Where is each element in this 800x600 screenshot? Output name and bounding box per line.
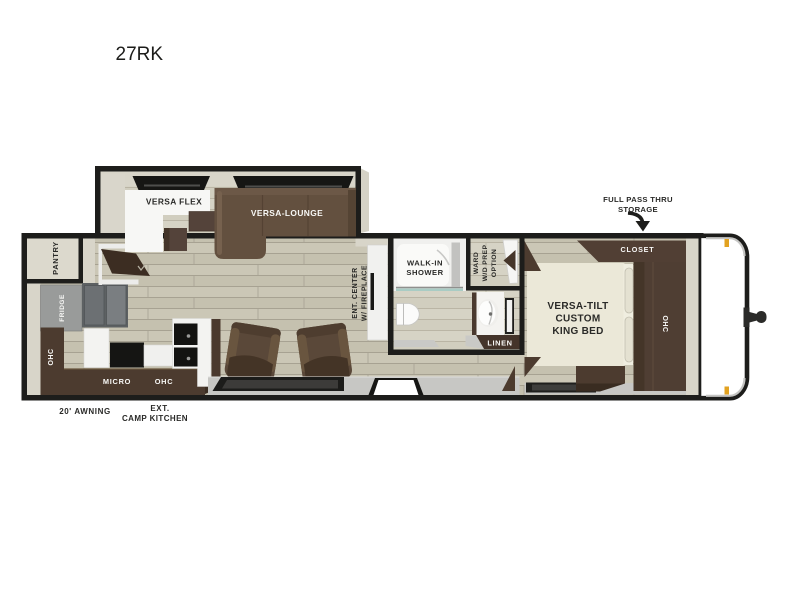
svg-text:20' AWNING: 20' AWNING [59, 407, 111, 416]
svg-text:CLOSET: CLOSET [621, 245, 655, 254]
svg-text:VERSA-LOUNGE: VERSA-LOUNGE [251, 208, 323, 218]
svg-text:W/D PREP: W/D PREP [482, 245, 489, 282]
svg-text:STORAGE: STORAGE [618, 205, 658, 214]
svg-text:WALK-IN: WALK-IN [407, 259, 443, 268]
svg-text:W/ FIREPLACE: W/ FIREPLACE [362, 265, 369, 321]
svg-text:KING BED: KING BED [552, 326, 603, 337]
svg-text:ENT. CENTER: ENT. CENTER [352, 267, 359, 318]
svg-text:SHOWER: SHOWER [406, 268, 443, 277]
svg-text:MICRO: MICRO [103, 377, 131, 386]
svg-text:OHC: OHC [155, 377, 174, 386]
svg-text:FRIDGE: FRIDGE [59, 294, 66, 322]
svg-text:OPTION: OPTION [491, 249, 498, 277]
svg-text:EXT.: EXT. [150, 404, 169, 413]
svg-text:27RK: 27RK [116, 44, 164, 65]
svg-text:LINEN: LINEN [487, 339, 512, 348]
svg-text:VERSA FLEX: VERSA FLEX [146, 197, 202, 207]
svg-text:FULL PASS THRU: FULL PASS THRU [603, 195, 673, 204]
svg-text:CAMP KITCHEN: CAMP KITCHEN [122, 414, 188, 423]
svg-text:CUSTOM: CUSTOM [556, 314, 601, 325]
svg-text:VERSA-TILT: VERSA-TILT [547, 301, 608, 312]
svg-text:PANTRY: PANTRY [51, 241, 60, 275]
svg-text:OHC: OHC [661, 315, 668, 332]
svg-text:WARD: WARD [473, 252, 480, 274]
svg-text:OHC: OHC [48, 348, 55, 365]
